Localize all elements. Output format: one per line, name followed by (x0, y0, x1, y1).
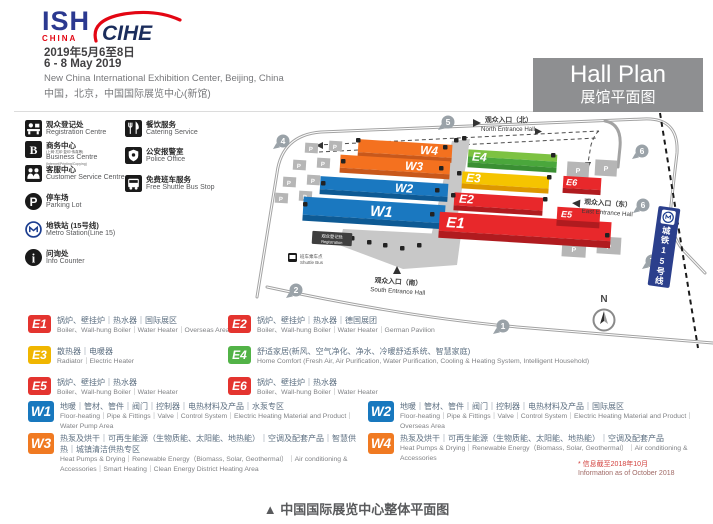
legend-note: * 信息截至2018年10月 Information as of October… (578, 460, 675, 478)
police-icon (125, 147, 142, 164)
hall-e2: E2 (453, 191, 543, 215)
venue-en: New China International Exhibition Cente… (44, 73, 284, 84)
facility-label-en: Parking Lot (46, 202, 81, 210)
facility-label-cn: 商务中心 (46, 141, 97, 150)
hall-w4-label: W4 (420, 143, 439, 158)
facility-label-cn: 问询处 (46, 249, 85, 258)
hall-badge-w3: W3 (28, 433, 54, 454)
svg-text:P: P (30, 196, 38, 209)
facility-label-en: Free Shuttle Bus Stop (146, 184, 214, 192)
ish-logo-text: ISH (42, 8, 90, 34)
svg-text:4: 4 (281, 136, 286, 146)
legend-row-w2: W2 地暖｜管材、管件｜阀门｜控制器｜电热材料及产品｜国际展区 Floor-he… (368, 401, 698, 431)
customer-service-icon (25, 165, 42, 182)
cihe-logo-text: CIHE (102, 22, 153, 45)
svg-text:P: P (279, 197, 283, 203)
hall-w1: W1 (302, 197, 445, 230)
hall-e3-label: E3 (466, 171, 482, 186)
hall-plan-title-en: Hall Plan (533, 61, 703, 89)
hall-legend: E1 锅炉、壁挂炉｜热水器｜国际展区 Boiler、Wall-hung Boil… (0, 313, 713, 485)
facility-label-en: Info Counter (46, 258, 85, 266)
legend-row-e6: E6 锅炉、壁挂炉｜热水器 Boiler、Wall-hung Boiler｜Wa… (228, 377, 378, 398)
facility-item-parking: P 停车场 Parking Lot (25, 193, 81, 210)
hall-e4: E4 (467, 149, 557, 172)
svg-text:i: i (32, 251, 36, 265)
svg-text:P: P (309, 147, 313, 153)
east-entrance-arrow-icon (572, 199, 581, 208)
hall-e6-label: E6 (566, 177, 579, 188)
facility-label-en: Police Office (146, 156, 185, 164)
facility-label-en: Business Centre (46, 154, 97, 162)
svg-text:P: P (287, 181, 291, 187)
svg-text:South Entrance Hall: South Entrance Hall (370, 286, 425, 297)
hall-badge-w2: W2 (368, 401, 394, 422)
svg-text:P: P (333, 145, 337, 151)
facility-item-info: i 问询处 Info Counter (25, 249, 85, 266)
facility-label-en: Customer Service Centre (46, 174, 125, 182)
south-entrance: 观众入口（南） South Entrance Hall (370, 266, 426, 297)
legend-row-e4: E4 舒适家居(新风、空气净化、净水、冷暖舒适系统、智慧家庭) Home Com… (228, 346, 589, 367)
legend-row-w1: W1 地暖｜管材、管件｜阀门｜控制器｜电热材料及产品｜水泵专区 Floor-he… (28, 401, 358, 431)
hall-e4-label: E4 (472, 150, 488, 165)
page-caption: ▲ 中国国际展览中心整体平面图 (0, 499, 713, 518)
facility-item-registration: 观众登记处 Registration Centre (25, 120, 106, 137)
facility-label-cn: 停车场 (46, 193, 81, 202)
svg-text:班车乘车点: 班车乘车点 (300, 253, 323, 260)
legend-row-e2: E2 锅炉、壁挂炉｜热水器｜德国展团 Boiler、Wall-hung Boil… (228, 315, 435, 336)
svg-text:6: 6 (640, 146, 645, 156)
hall-w2-label: W2 (395, 181, 414, 196)
hall-e1-label: E1 (446, 214, 465, 232)
map-registration-bar: 观众登记处 Registration (312, 231, 353, 246)
gate-pin-6-mid: 6 (633, 199, 650, 214)
note-en: Information as of October 2018 (578, 469, 675, 478)
svg-text:North Entrance Hall: North Entrance Hall (481, 126, 535, 133)
svg-text:P: P (311, 179, 315, 185)
legend-row-e5: E5 锅炉、壁挂炉｜热水器 Boiler、Wall-hung Boiler｜Wa… (28, 377, 178, 398)
catering-icon (125, 120, 142, 137)
svg-text:观众入口（北）: 观众入口（北） (485, 115, 533, 124)
venue-cn: 中国，北京，中国国际展览中心(新馆) (44, 85, 211, 100)
map-shuttle-point: 班车乘车点 Shuttle Bus (288, 253, 324, 265)
hall-badge-e6: E6 (228, 377, 251, 395)
facility-item-business: B 商务中心 (上网·打印·复印·传真等) Business Centre (I… (25, 141, 97, 166)
facility-label-cn: 观众登记处 (46, 120, 106, 129)
svg-text:P: P (575, 168, 580, 175)
metro-line-label: 城铁15号线 (653, 225, 673, 286)
facility-label-en: Metro Station(Line 15) (46, 230, 115, 238)
svg-text:观众入口（东）: 观众入口（东） (584, 197, 632, 209)
facility-label-cn: 客服中心 (46, 165, 125, 174)
legend-row-e1: E1 锅炉、壁挂炉｜热水器｜国际展区 Boiler、Wall-hung Boil… (28, 315, 230, 336)
svg-text:P: P (297, 164, 301, 170)
page-title: Hall Plan 展馆平面图 (533, 58, 703, 112)
facility-label-cn: 地铁站 (15号线) (46, 221, 115, 230)
business-centre-icon: B (25, 141, 42, 158)
hall-e3: E3 (461, 170, 549, 193)
hall-badge-w1: W1 (28, 401, 54, 422)
hall-e5-label: E5 (561, 209, 574, 220)
hall-badge-e5: E5 (28, 377, 51, 395)
svg-text:B: B (30, 144, 38, 157)
facility-label-en: Catering Service (146, 129, 198, 137)
facility-item-catering: 餐饮服务 Catering Service (125, 120, 198, 137)
svg-text:P: P (571, 247, 576, 254)
facility-item-customer-service: 客服中心 Customer Service Centre (25, 165, 125, 182)
svg-text:Shuttle Bus: Shuttle Bus (300, 260, 324, 265)
gate-pin-6-top: 6 (632, 145, 649, 160)
facility-item-shuttle: 免费班车服务 Free Shuttle Bus Stop (125, 175, 214, 192)
facility-label-en: Registration Centre (46, 129, 106, 137)
svg-text:N: N (600, 294, 607, 305)
note-cn: * 信息截至2018年10月 (578, 460, 675, 469)
parking-icon: P (25, 193, 42, 210)
shuttle-bus-icon (125, 175, 142, 192)
svg-text:6: 6 (641, 200, 646, 210)
hall-w1-label: W1 (370, 203, 393, 221)
hall-e2-label: E2 (459, 192, 475, 207)
metro-logo-icon (660, 209, 676, 225)
hall-e6: E6 (562, 176, 601, 195)
hall-badge-e4: E4 (228, 346, 251, 364)
svg-text:P: P (603, 166, 608, 173)
hall-w2: W2 (320, 176, 449, 202)
svg-text:P: P (321, 162, 325, 168)
facility-label-cn: 公安报警室 (146, 147, 185, 156)
svg-text:观众入口（南）: 观众入口（南） (374, 275, 422, 287)
facility-item-police: 公安报警室 Police Office (125, 147, 185, 164)
legend-row-e3: E3 散热器｜电暖器 Radiator｜Electric Heater (28, 346, 134, 367)
legend-row-w3: W3 热泵及烘干｜可再生能源（生物质能、太阳能、地热能）｜空调及配套产品｜智慧供… (28, 433, 358, 474)
event-date-en: 6 - 8 May 2019 (44, 58, 121, 70)
hall-badge-e1: E1 (28, 315, 51, 333)
hall-badge-w4: W4 (368, 433, 394, 454)
facility-item-metro: 地铁站 (15号线) Metro Station(Line 15) (25, 221, 115, 238)
svg-text:5: 5 (446, 117, 451, 127)
hall-w3-label: W3 (405, 159, 424, 174)
svg-text:2: 2 (294, 285, 299, 295)
info-icon: i (25, 249, 42, 266)
legend-row-w4: W4 热泵及烘干｜可再生能源（生物质能、太阳能、地热能）｜空调及配套产品 Hea… (368, 433, 698, 463)
facility-label-cn: 免费班车服务 (146, 175, 214, 184)
facility-label-cn: 餐饮服务 (146, 120, 198, 129)
hall-badge-e3: E3 (28, 346, 51, 364)
hall-badge-e2: E2 (228, 315, 251, 333)
ish-logo: ISH CHINA (42, 8, 90, 43)
registration-icon (25, 120, 42, 137)
metro-icon (25, 221, 42, 238)
